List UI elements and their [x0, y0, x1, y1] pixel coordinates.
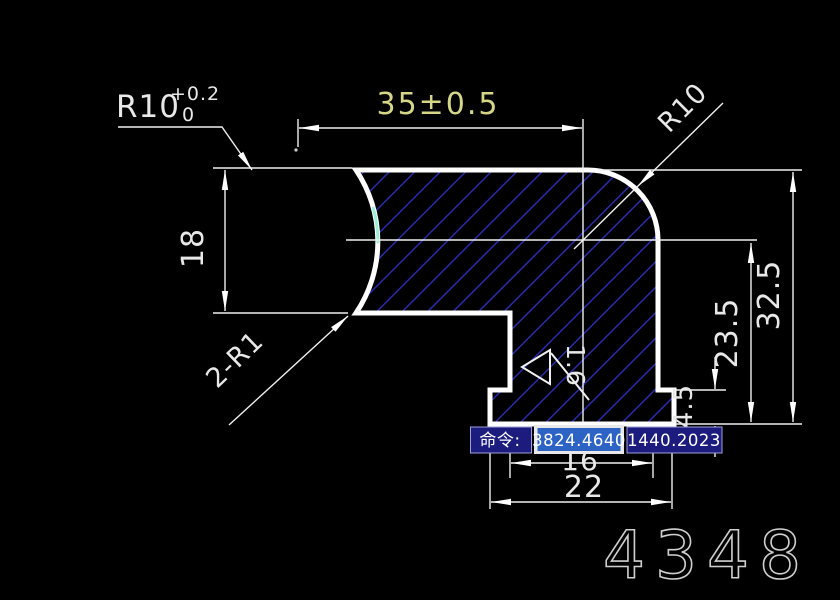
dim-text-height-total: 32.5: [752, 260, 787, 331]
dim-text-step-height: 4.5: [669, 384, 699, 428]
coordinate-y-value: 1440.2023: [627, 431, 721, 450]
cad-canvas[interactable]: 35±0.5 R10 +0.2 0 R10 18 2-R1 32.5 23.5 …: [0, 0, 840, 600]
dim-text-tol-upper: +0.2: [170, 83, 220, 105]
command-prompt-label: 命令:: [479, 431, 520, 451]
dim-text-width-base: 22: [564, 470, 604, 505]
coordinate-x-value[interactable]: 3824.4640: [532, 431, 626, 450]
dim-text-height-left: 18: [176, 228, 211, 268]
dim-text-tol-lower: 0: [182, 104, 195, 126]
dim-text-width-top: 35±0.5: [376, 87, 499, 122]
part-number: 4348: [603, 517, 811, 594]
command-bar: 命令: 3824.4640 1440.2023: [471, 425, 723, 454]
node-point: [294, 148, 297, 151]
dim-text-height-to-center: 23.5: [710, 298, 745, 369]
dim-text-roughness: 1.6: [561, 344, 590, 387]
